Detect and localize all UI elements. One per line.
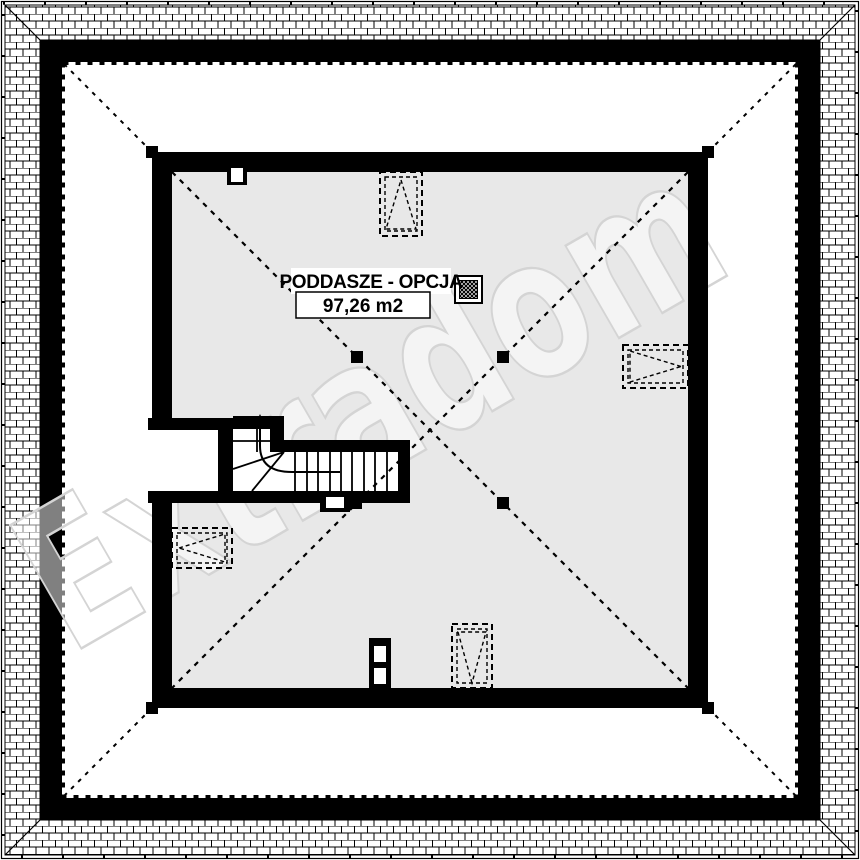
corner-post bbox=[702, 702, 714, 714]
room-area: 97,26 m2 bbox=[323, 296, 403, 317]
floor-plan-page: Extradom bbox=[0, 0, 860, 860]
chimney bbox=[369, 638, 391, 690]
wall-vent-box bbox=[227, 165, 247, 185]
room-title: PODDASZE - OPCJA bbox=[279, 272, 463, 293]
support-post bbox=[497, 351, 509, 363]
stair-wall-notch bbox=[148, 430, 218, 491]
floor-plan-drawing: Extradom bbox=[0, 0, 860, 860]
corner-post bbox=[146, 146, 158, 158]
stair-duct bbox=[320, 491, 350, 512]
support-post bbox=[351, 351, 363, 363]
support-post bbox=[497, 497, 509, 509]
corner-post bbox=[702, 146, 714, 158]
support-post bbox=[349, 496, 362, 509]
corner-post bbox=[146, 702, 158, 714]
